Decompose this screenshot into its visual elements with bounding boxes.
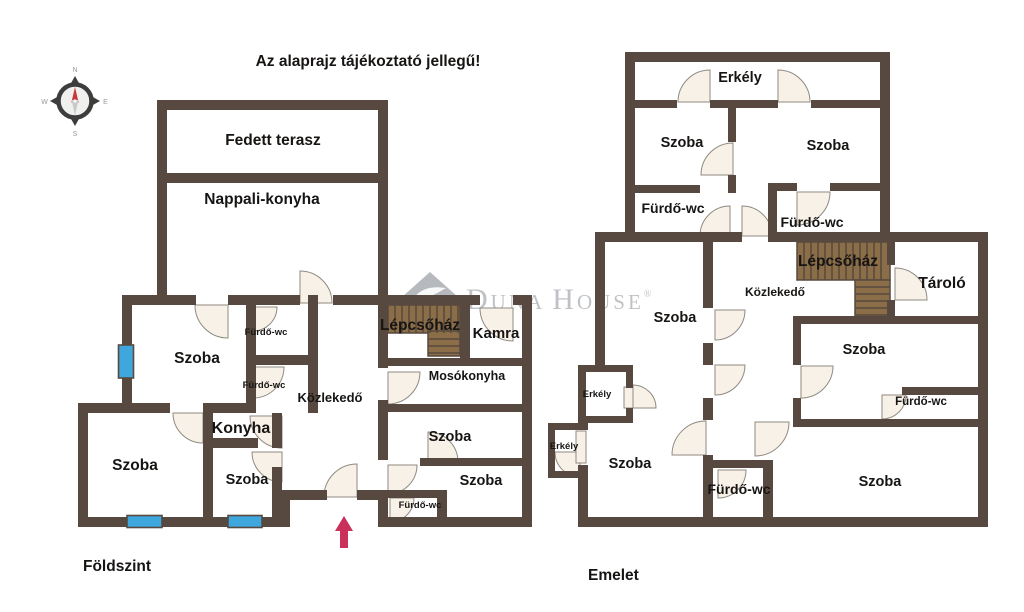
room-label-szoba-2: Szoba	[112, 457, 158, 474]
room-label-szoba-1: Szoba	[661, 135, 705, 151]
room-label-furdo-wc-3: Fürdő-wc	[399, 500, 442, 511]
room-label-szoba-2: Szoba	[807, 138, 851, 154]
upper-floor: Erkély Szoba Szoba Fürdő-wc Fürdő-wc Lép…	[548, 52, 988, 584]
upper-floor-name: Emelet	[588, 567, 639, 584]
room-label-szoba-3: Szoba	[654, 310, 698, 326]
room-label-erkely-1: Erkély	[583, 389, 612, 400]
room-label-szoba-4: Szoba	[843, 342, 887, 358]
compass-letter-s: S	[73, 131, 78, 138]
room-label-furdo-wc-1: Fürdő-wc	[642, 200, 705, 216]
compass-rose-icon: N S E W	[41, 67, 108, 138]
room-label-nappali-konyha: Nappali-konyha	[204, 191, 320, 208]
room-label-konyha: Konyha	[212, 420, 271, 437]
floor-plan-page: Az alaprajz tájékoztató jellegű! N S E W…	[0, 0, 1024, 612]
room-label-szoba-5: Szoba	[609, 456, 653, 472]
room-label-furdo-wc-2: Fürdő-wc	[781, 214, 844, 230]
compass-letter-e: E	[103, 99, 108, 106]
compass-letter-n: N	[72, 67, 77, 74]
room-label-kozlekedo: Közlekedő	[745, 285, 805, 299]
room-label-fedett-terasz: Fedett terasz	[225, 132, 321, 149]
room-label-kozlekedo: Közlekedő	[297, 390, 362, 405]
room-label-lepcsohaz: Lépcsőház	[798, 253, 878, 270]
floor-plan-canvas: Az alaprajz tájékoztató jellegű! N S E W…	[0, 0, 1024, 612]
entrance-arrow	[335, 516, 353, 548]
room-label-furdo-wc-2: Fürdő-wc	[243, 380, 286, 391]
room-label-szoba-5: Szoba	[460, 473, 504, 489]
room-label-szoba-4: Szoba	[429, 429, 473, 445]
room-label-furdo-wc-4: Fürdő-wc	[708, 481, 771, 497]
plan-title: Az alaprajz tájékoztató jellegű!	[256, 53, 481, 70]
room-label-szoba-6: Szoba	[859, 474, 903, 490]
room-label-tarolo: Tároló	[918, 275, 965, 292]
room-label-erkely-2: Erkély	[550, 441, 579, 452]
room-label-kamra: Kamra	[473, 325, 520, 342]
room-label-szoba-3: Szoba	[226, 472, 270, 488]
room-label-furdo-wc-3: Fürdő-wc	[895, 396, 947, 408]
room-label-lepcsohaz: Lépcsőház	[380, 317, 460, 334]
compass-letter-w: W	[41, 99, 48, 106]
room-label-furdo-wc-1: Fürdő-wc	[245, 327, 288, 338]
room-label-mosokonyha: Mosókonyha	[429, 369, 506, 383]
room-label-szoba-1: Szoba	[174, 350, 220, 367]
ground-floor-name: Földszint	[83, 558, 151, 575]
ground-floor: Fedett terasz Nappali-konyha Szoba Fürdő…	[78, 100, 532, 575]
room-label-erkely-top: Erkély	[718, 70, 762, 86]
